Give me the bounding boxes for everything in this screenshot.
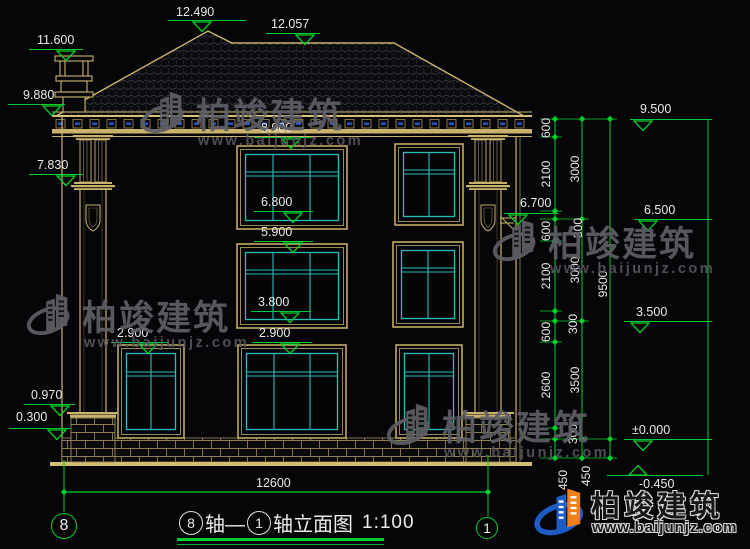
title-axis-circle-1: 1 (247, 511, 271, 535)
dimension-label: 3500 (568, 367, 582, 394)
level-mark-label: 0.300 (16, 410, 47, 424)
title-text-2: 轴立面图 (273, 508, 353, 537)
overall-width-dim: 12600 (256, 476, 291, 490)
axis-bubble-8: 8 (51, 513, 77, 539)
title-text-1: 轴— (205, 508, 245, 537)
ground-line (50, 462, 532, 466)
baijun-logo-icon (26, 288, 78, 336)
watermark-brand: 柏竣建筑 (442, 400, 590, 451)
level-mark-triangle-icon (56, 49, 76, 67)
level-mark-label: 6.800 (261, 195, 292, 209)
level-mark-triangle-icon (42, 104, 62, 122)
dimension-label: 2100 (539, 161, 553, 188)
watermark-url: www.baijunjz.com (550, 261, 715, 277)
level-mark-triangle-icon (283, 241, 303, 259)
title-scale: 1:100 (362, 512, 415, 534)
dimension-label: 3000 (568, 156, 582, 183)
baijun-logo-icon (140, 86, 192, 134)
window (395, 144, 463, 225)
level-mark-triangle-icon (633, 439, 653, 457)
watermark-brand: 柏竣建筑 (82, 290, 230, 341)
axis-bubble-1: 1 (476, 517, 498, 539)
level-mark-label: 9.500 (640, 102, 671, 116)
watermark-url: www.baijunjz.com (444, 445, 609, 461)
level-mark-label: 2.900 (259, 326, 290, 340)
level-mark-label: 12.490 (176, 5, 214, 19)
level-mark-triangle-icon (295, 33, 315, 51)
window (393, 242, 463, 327)
brand-url: www.baijunjz.com (592, 519, 737, 536)
level-mark-label: 0.970 (31, 388, 62, 402)
drawing-title: 8轴—1轴立面图1:100 (177, 508, 415, 537)
dimension-label: 300 (566, 314, 580, 334)
level-mark-triangle-icon (56, 174, 76, 192)
level-mark-label: ±0.000 (632, 423, 670, 437)
watermark-url: www.baijunjz.com (198, 133, 363, 149)
level-mark-label: 3.500 (636, 305, 667, 319)
watermark-brand: 柏竣建筑 (548, 216, 696, 267)
level-mark-label: 9.880 (23, 88, 54, 102)
level-mark-label: 3.800 (258, 295, 289, 309)
level-mark-label: 6.500 (644, 203, 675, 217)
baijun-logo-icon (492, 214, 544, 262)
level-mark-label: 6.700 (520, 196, 551, 210)
level-mark-triangle-icon (280, 342, 300, 360)
level-mark-label: 7.830 (37, 158, 68, 172)
dimension-label: 600 (539, 118, 553, 138)
level-mark-triangle-icon (633, 119, 653, 137)
level-mark-triangle-icon (630, 321, 650, 339)
level-mark-triangle-icon (50, 404, 70, 422)
brand-logo-corner: 柏竣建筑 www.baijunjz.com (534, 476, 746, 546)
level-mark-label: 5.900 (261, 225, 292, 239)
title-underline-2 (177, 544, 384, 545)
watermark-brand: 柏竣建筑 (196, 88, 344, 139)
baijun-logo-icon (386, 398, 438, 446)
title-underline (177, 538, 384, 541)
dimension-label: 600 (539, 322, 553, 342)
title-axis-circle-8: 8 (179, 511, 203, 535)
elevation-drawing-canvas: 12.49012.05711.6009.8807.8308.9006.8005.… (0, 0, 750, 549)
baijun-logo-color-icon (534, 478, 592, 540)
level-mark-label: 11.600 (37, 33, 74, 47)
level-mark-triangle-icon (47, 428, 67, 446)
level-mark-label: 12.057 (271, 17, 309, 31)
level-mark-triangle-icon (192, 20, 212, 38)
watermark-url: www.baijunjz.com (84, 335, 249, 351)
dimension-label: 2600 (539, 372, 553, 399)
